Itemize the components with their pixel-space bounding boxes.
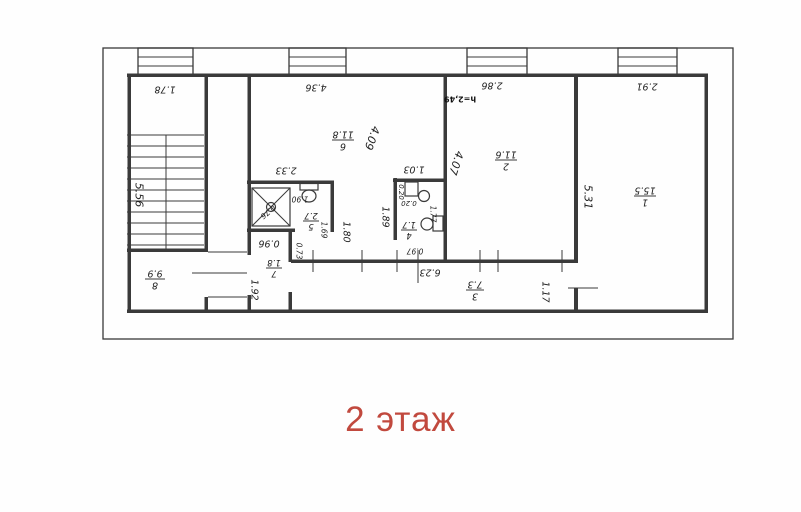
dim-alcove-a: 1.80 xyxy=(341,221,352,242)
dim-shower: 0.76 xyxy=(259,203,278,221)
dim-hall7-width: 0.96 xyxy=(258,238,279,249)
room-label-3: 3 7.3 xyxy=(466,279,484,302)
dim-bath-door: 0.73 xyxy=(295,243,304,260)
sink-icon xyxy=(405,182,430,202)
room-label-2: 2 11.6 xyxy=(495,149,517,172)
dim-room2-width: 2.86 xyxy=(481,80,502,91)
svg-text:11.6: 11.6 xyxy=(495,149,516,160)
dim-corridor-width: 1.17 xyxy=(540,281,551,302)
svg-text:2: 2 xyxy=(503,161,509,172)
window-icon xyxy=(289,48,346,76)
svg-text:8: 8 xyxy=(152,280,158,291)
dim-room6-width: 4.36 xyxy=(305,82,326,93)
window-icon xyxy=(138,48,193,76)
dim-stair-length: 5.56 xyxy=(133,183,146,208)
svg-text:1.8: 1.8 xyxy=(267,257,281,267)
dim-hall7-length: 1.92 xyxy=(249,279,260,300)
room-label-5: 5 2.7 xyxy=(303,210,319,231)
room-label-6: 6 11.8 xyxy=(332,129,354,152)
svg-text:9.9: 9.9 xyxy=(147,268,162,279)
svg-text:5: 5 xyxy=(308,221,313,231)
dim-room1-depth: 5.31 xyxy=(582,185,595,210)
svg-text:3: 3 xyxy=(472,291,478,302)
dim-room4-inner: 1.77 xyxy=(429,206,438,223)
dim-room4-bottom: 0.97 xyxy=(406,247,423,256)
svg-text:4: 4 xyxy=(406,230,411,240)
dim-room2-depth: 4.07 xyxy=(446,149,466,176)
svg-text:7.3: 7.3 xyxy=(467,279,482,290)
dim-wc: 1.90 xyxy=(291,195,308,204)
svg-text:1.7: 1.7 xyxy=(402,219,416,229)
svg-text:1: 1 xyxy=(642,197,648,208)
window-icon xyxy=(467,48,527,76)
floor-plan-drawing: 1.78 5.56 4.36 4.09 2.86 4.07 h=2,49 2.9… xyxy=(0,0,801,390)
room-label-7: 7 1.8 xyxy=(266,257,282,278)
dim-bath-inner: 1.69 xyxy=(320,222,329,239)
room-label-8: 8 9.9 xyxy=(145,268,165,291)
ceiling-height-note: h=2,49 xyxy=(444,95,477,104)
svg-text:2.7: 2.7 xyxy=(304,210,318,220)
dim-room4-b: 0.20 xyxy=(401,199,417,207)
dim-bath-width: 2.33 xyxy=(275,165,296,176)
window-icon xyxy=(618,48,677,76)
floor-caption: 2 этаж xyxy=(0,400,801,440)
svg-text:11.8: 11.8 xyxy=(332,129,353,140)
dim-room4-a: 0.20 xyxy=(397,184,405,200)
dim-alcove-b: 1.89 xyxy=(380,206,391,227)
floor-plan-scan: 1.78 5.56 4.36 4.09 2.86 4.07 h=2,49 2.9… xyxy=(0,0,801,512)
dim-room4-width: 1.03 xyxy=(403,164,424,175)
dim-corridor-length: 6.23 xyxy=(419,267,440,278)
dim-room6-depth: 4.09 xyxy=(362,124,383,151)
svg-text:15.5: 15.5 xyxy=(634,185,655,196)
room-label-4: 4 1.7 xyxy=(401,219,417,240)
dim-room1-width: 2.91 xyxy=(636,81,657,92)
room-label-1: 1 15.5 xyxy=(634,185,656,208)
dim-stair-width: 1.78 xyxy=(154,84,175,95)
svg-text:6: 6 xyxy=(340,141,346,152)
svg-text:7: 7 xyxy=(271,268,277,278)
